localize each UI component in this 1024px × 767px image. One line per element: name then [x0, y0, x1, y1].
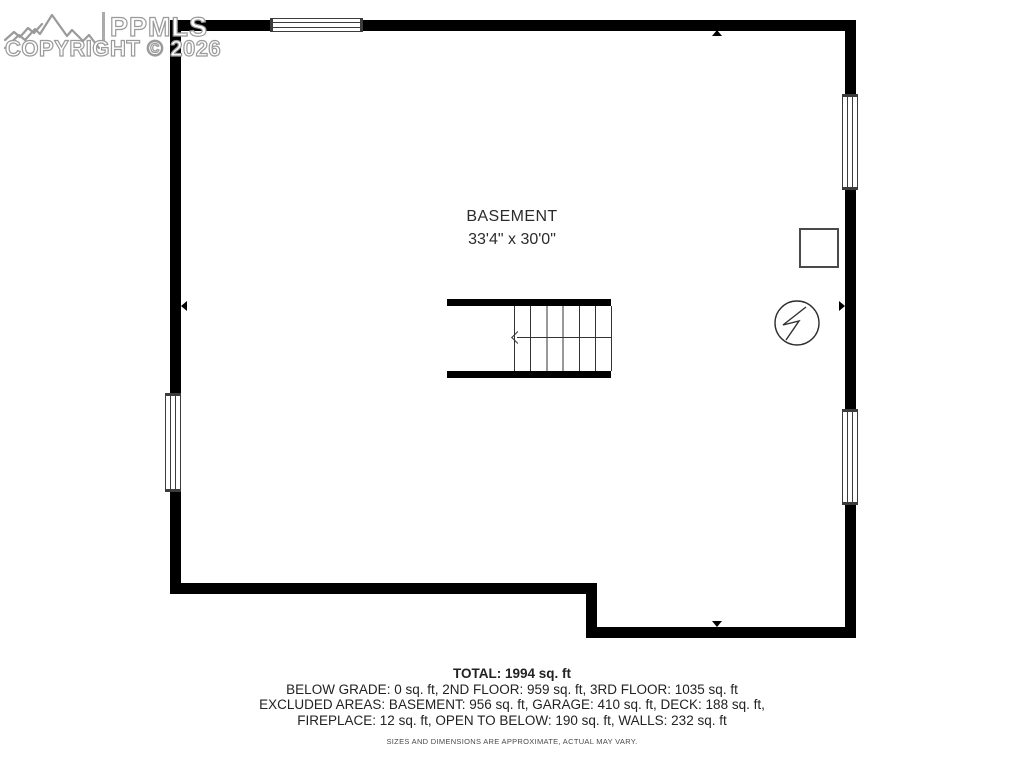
summary-excluded-line2: FIREPLACE: 12 sq. ft, OPEN TO BELOW: 190… [0, 713, 1024, 729]
wall-left [170, 20, 181, 594]
wall-marker-top-icon [712, 30, 722, 36]
water-heater-circle-bolt-icon [773, 299, 821, 347]
window-right-wall-lower [842, 409, 858, 505]
stair-direction-line [517, 337, 611, 338]
wall-marker-left-icon [181, 301, 187, 311]
stair-wall-top [447, 299, 611, 306]
wall-marker-right-icon [839, 301, 845, 311]
wall-bottom-upper [170, 583, 597, 594]
stair-treads [514, 306, 612, 371]
area-summary: TOTAL: 1994 sq. ft BELOW GRADE: 0 sq. ft… [0, 666, 1024, 746]
room-name: BASEMENT [362, 208, 662, 226]
window-top-wall [270, 18, 363, 32]
window-right-wall-upper [842, 94, 858, 190]
furnace-square-icon [799, 228, 839, 268]
summary-total: TOTAL: 1994 sq. ft [0, 666, 1024, 682]
summary-disclaimer: SIZES AND DIMENSIONS ARE APPROXIMATE, AC… [0, 737, 1024, 746]
window-left-wall [165, 393, 181, 492]
summary-floors-line: BELOW GRADE: 0 sq. ft, 2ND FLOOR: 959 sq… [0, 682, 1024, 698]
watermark-copyright: COPYRIGHT © 2026 [5, 36, 221, 62]
room-dimensions: 33'4" x 30'0" [362, 231, 662, 249]
watermark: PPMLS COPYRIGHT © 2026 [0, 0, 230, 64]
wall-marker-bottom-icon [712, 621, 722, 627]
wall-bottom-lower [586, 627, 856, 638]
stair-wall-bottom [447, 371, 611, 378]
summary-excluded-line1: EXCLUDED AREAS: BASEMENT: 956 sq. ft, GA… [0, 697, 1024, 713]
room-label-block: BASEMENT 33'4" x 30'0" [362, 208, 662, 249]
floor-plan-page: BASEMENT 33'4" x 30'0" PPMLS COPYRIGHT ©… [0, 0, 1024, 767]
